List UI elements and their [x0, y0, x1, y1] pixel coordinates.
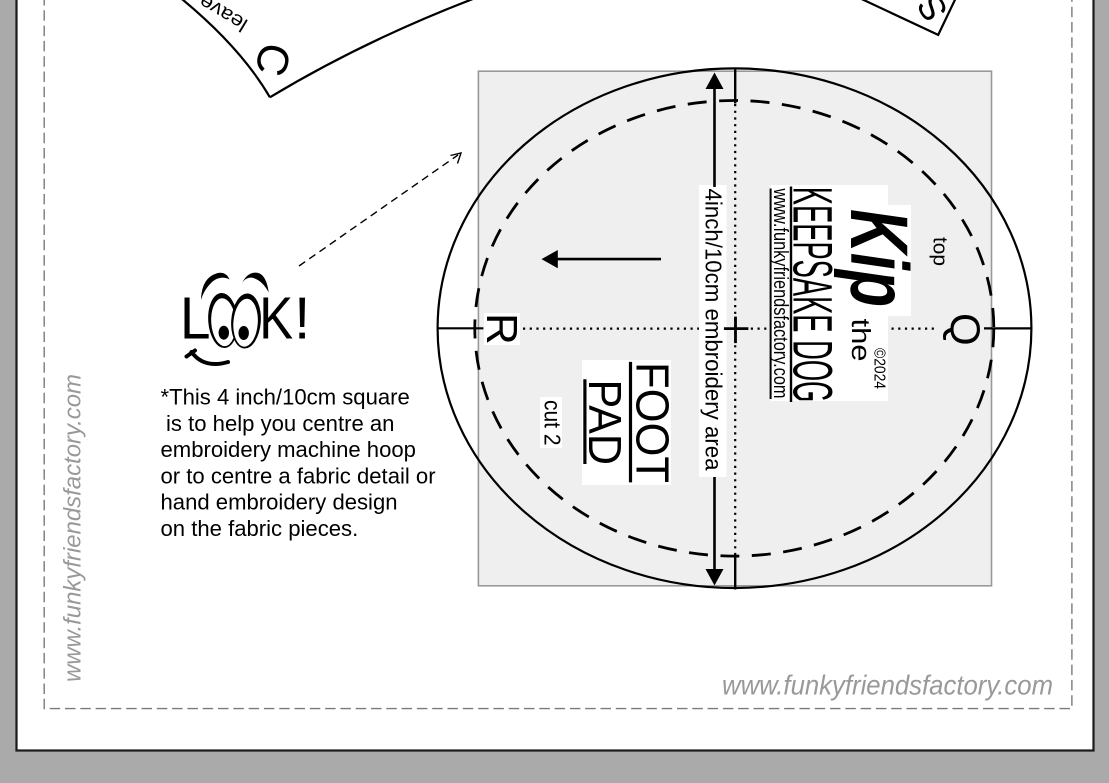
svg-text:*This 4 inch/10cm square: *This 4 inch/10cm square [161, 385, 410, 410]
svg-text:R: R [477, 313, 526, 345]
svg-text:cut 2: cut 2 [540, 400, 566, 446]
svg-text:www.funkyfriendsfactory.com: www.funkyfriendsfactory.com [722, 670, 1053, 701]
svg-text:www.funkyfriendsfactory.com: www.funkyfriendsfactory.com [60, 374, 87, 682]
svg-text:or to centre a fabric detail o: or to centre a fabric detail or [161, 463, 436, 488]
svg-text:Kip: Kip [833, 209, 924, 307]
svg-text:K: K [259, 285, 293, 351]
svg-text:is to help you centre an: is to help you centre an [166, 411, 394, 436]
svg-text:on the fabric pieces.: on the fabric pieces. [161, 516, 359, 541]
svg-text:©2024: ©2024 [871, 348, 888, 389]
svg-text:top: top [929, 237, 951, 266]
svg-text:FOOT: FOOT [627, 362, 679, 483]
svg-text:embroidery machine hoop: embroidery machine hoop [161, 437, 416, 462]
svg-text:PAD: PAD [579, 380, 631, 466]
svg-text:4inch/10cm embroidery area: 4inch/10cm embroidery area [701, 189, 727, 471]
svg-text:!: ! [294, 285, 310, 351]
svg-text:www.funkyfriendsfactory.com: www.funkyfriendsfactory.com [769, 188, 791, 399]
svg-text:Q: Q [942, 313, 989, 346]
svg-text:hand embroidery design: hand embroidery design [161, 490, 398, 515]
svg-text:the: the [846, 319, 874, 362]
svg-text:L: L [180, 286, 211, 352]
